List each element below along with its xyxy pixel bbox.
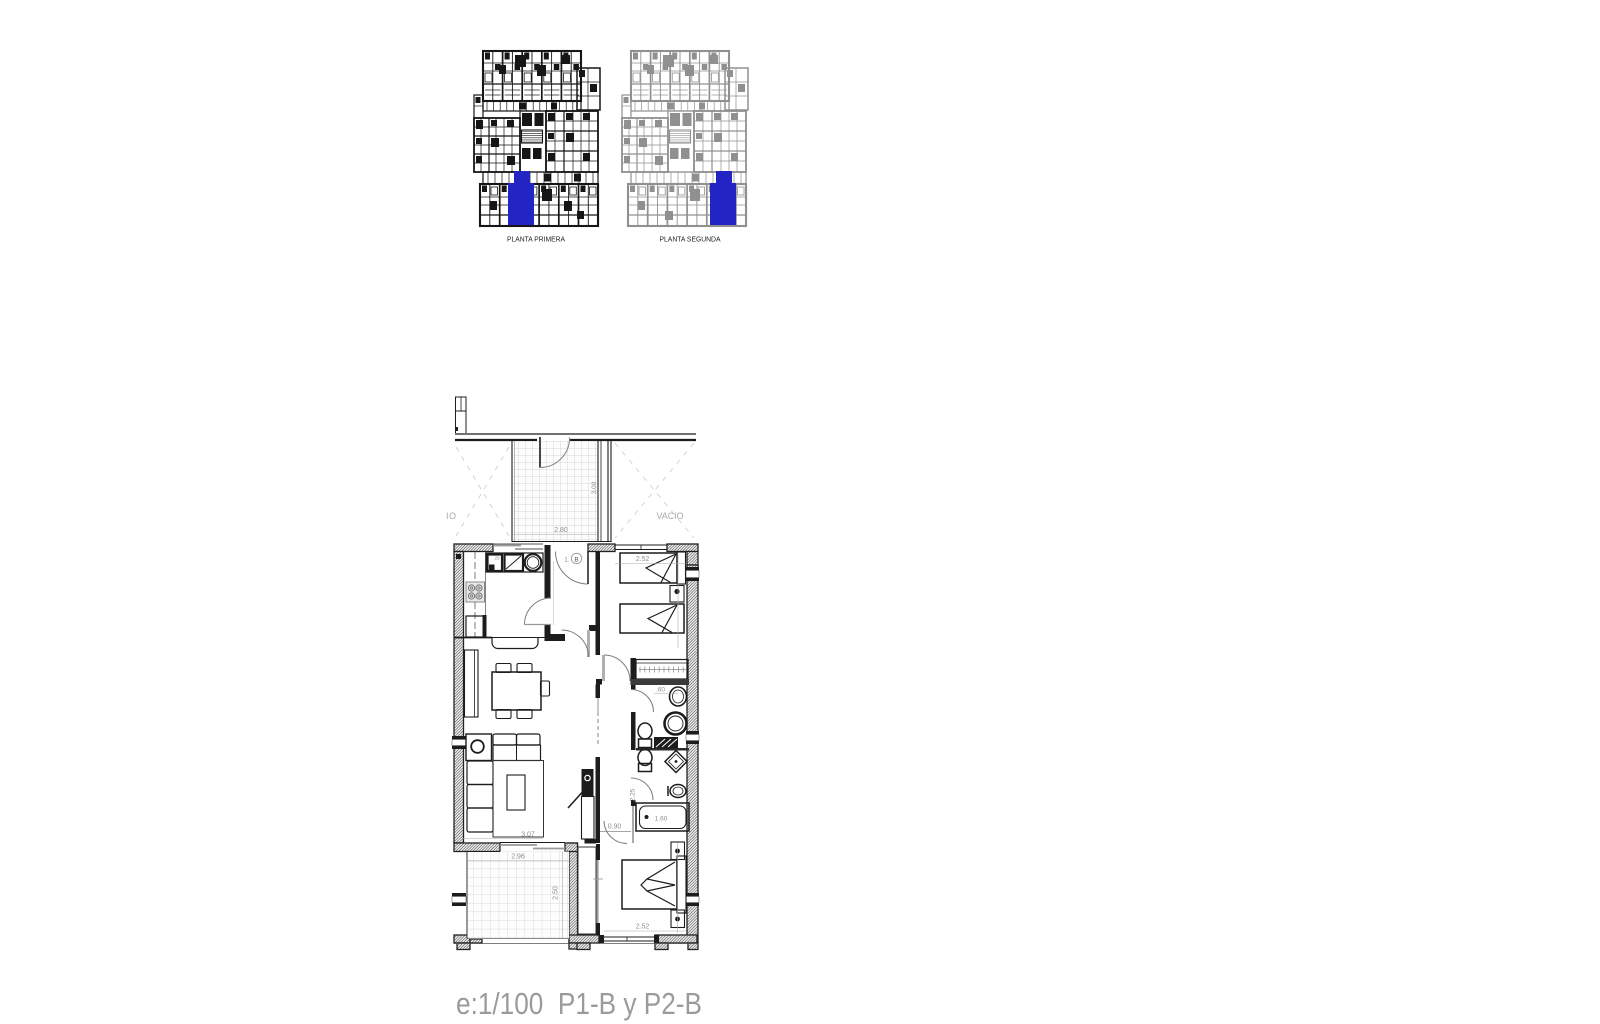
svg-text:2.52: 2.52	[636, 924, 650, 931]
svg-text:0.90: 0.90	[608, 824, 622, 831]
svg-text:2.25: 2.25	[630, 788, 637, 801]
svg-text:3.07: 3.07	[521, 832, 535, 839]
svg-text:1.: 1.	[564, 557, 570, 564]
svg-text:3.00: 3.00	[591, 481, 598, 494]
svg-text:PLANTA SEGUNDA: PLANTA SEGUNDA	[660, 235, 721, 244]
svg-text:2.80: 2.80	[554, 527, 568, 534]
svg-text:2.50: 2.50	[553, 886, 560, 900]
svg-text:1.60: 1.60	[655, 816, 668, 823]
svg-text:2.52: 2.52	[636, 556, 650, 563]
svg-text:IO: IO	[446, 511, 457, 521]
svg-text:.60: .60	[656, 687, 665, 694]
svg-text:29: 29	[494, 556, 500, 561]
svg-text:B: B	[574, 556, 578, 563]
svg-text:PLANTA PRIMERA: PLANTA PRIMERA	[507, 235, 565, 244]
svg-text:e:1/100 P1-B y P2-B: e:1/100 P1-B y P2-B	[456, 987, 702, 1021]
svg-text:2.96: 2.96	[511, 854, 525, 861]
